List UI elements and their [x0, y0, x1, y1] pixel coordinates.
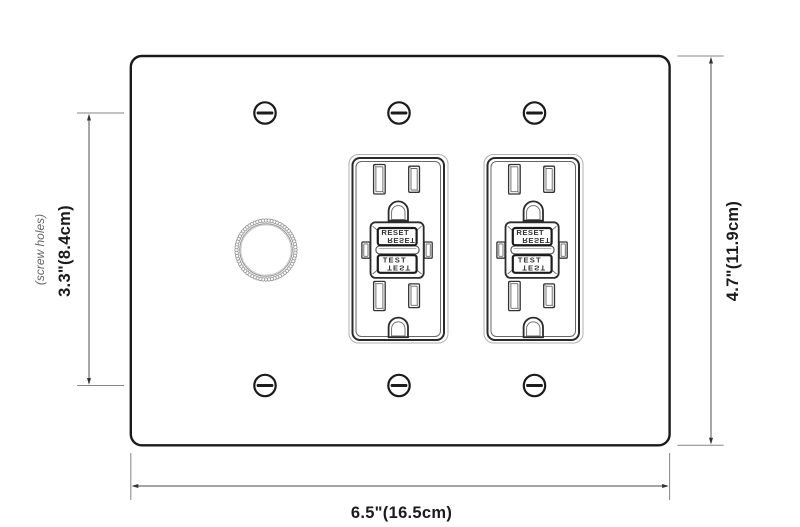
svg-text:RESET: RESET: [387, 236, 415, 245]
svg-text:(screw holes): (screw holes): [33, 214, 47, 285]
svg-text:3.3"(8.4cm): 3.3"(8.4cm): [56, 205, 74, 297]
svg-text:RESET: RESET: [522, 236, 550, 245]
svg-text:4.7"(11.9cm): 4.7"(11.9cm): [724, 201, 742, 301]
svg-text:TEST: TEST: [518, 255, 542, 264]
svg-text:TEST: TEST: [387, 264, 411, 273]
svg-text:TEST: TEST: [522, 264, 546, 273]
svg-text:TEST: TEST: [383, 255, 407, 264]
svg-text:6.5"(16.5cm): 6.5"(16.5cm): [351, 504, 452, 522]
